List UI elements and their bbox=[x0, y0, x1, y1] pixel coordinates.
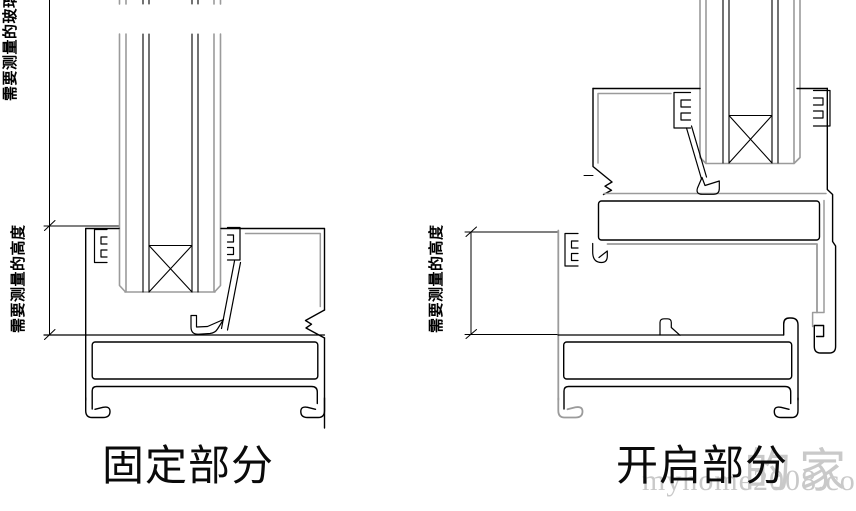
sash-chamber bbox=[599, 201, 820, 240]
fixed-glazing-bead-diagonal bbox=[222, 261, 241, 330]
opening-height-dimension-label: 需要测量的高度 bbox=[428, 224, 446, 333]
fixed-glass-dimension-label: 需要测量的玻璃 bbox=[2, 0, 20, 101]
fixed-frame-inner-gray-edge bbox=[246, 234, 321, 307]
fixed-glass-outer-panes bbox=[120, 0, 221, 292]
sash-right-inner-gray bbox=[813, 201, 824, 327]
fixed-height-dimension-label: 需要测量的高度 bbox=[10, 224, 28, 333]
opening-glass-inner-panes bbox=[723, 0, 778, 163]
sash-glazing-clip-right bbox=[814, 91, 831, 127]
fixed-frame-right-notch bbox=[306, 310, 325, 338]
drawing-canvas: 需要测量的玻璃 需要测量的高度 需要测量的高度 的家 myhome2008.co… bbox=[0, 0, 856, 511]
opening-dim-tick-top bbox=[466, 227, 477, 237]
fixed-dimension-lines bbox=[44, 0, 119, 340]
sash-left-wall-with-notch bbox=[593, 89, 612, 195]
fixed-frame-left-foot bbox=[86, 398, 110, 418]
sash-glazing-bead-diagonal bbox=[687, 126, 707, 179]
fixed-dim-tick-top bbox=[45, 221, 56, 231]
frame-glazing-clip bbox=[565, 234, 578, 267]
opening-sash-profile bbox=[584, 89, 836, 354]
opening-glass-outer-panes bbox=[700, 0, 800, 164]
frame-right-hook-and-wall bbox=[784, 318, 798, 400]
sash-glazing-bead-foot bbox=[697, 178, 719, 195]
fixed-section-drawing bbox=[44, 0, 325, 428]
fixed-dim-tick-bottom bbox=[45, 330, 56, 340]
frame-top-hook bbox=[593, 244, 608, 263]
fixed-frame-profile bbox=[44, 228, 325, 429]
frame-upper-web-gray bbox=[608, 244, 818, 313]
opening-dim-tick-bottom bbox=[466, 330, 477, 339]
opening-frame-profile bbox=[558, 231, 817, 418]
frame-chamber bbox=[564, 342, 792, 379]
fixed-glass-unit bbox=[120, 0, 221, 292]
sash-right-wall-and-hook bbox=[814, 89, 835, 354]
fixed-glass-spacer-x bbox=[149, 246, 192, 293]
fixed-caption: 固定部分 bbox=[102, 443, 274, 491]
opening-glass-unit bbox=[700, 0, 800, 164]
frame-lower-web bbox=[564, 387, 791, 410]
opening-dimension-lines bbox=[465, 227, 559, 339]
fixed-glazing-clip-right bbox=[228, 228, 241, 261]
fixed-glazing-clip-left bbox=[95, 230, 108, 263]
frame-left-foot-gray bbox=[558, 398, 582, 418]
fixed-glazing-bead-foot bbox=[191, 316, 224, 335]
opening-glass-spacer-x bbox=[729, 116, 772, 164]
opening-caption: 开启部分 bbox=[616, 443, 788, 491]
opening-section-drawing bbox=[465, 0, 836, 418]
frame-shelf-clip bbox=[660, 319, 680, 336]
frame-right-foot bbox=[774, 398, 798, 418]
fixed-frame-top-right-wall bbox=[221, 229, 325, 311]
sash-inner-gray-top-left bbox=[598, 94, 671, 164]
fixed-frame-lower-web bbox=[92, 387, 317, 410]
fixed-glass-inner-panes bbox=[143, 0, 198, 292]
sash-glazing-clip-left bbox=[674, 93, 691, 129]
fixed-frame-right-foot bbox=[301, 398, 325, 418]
fixed-frame-left-wall bbox=[86, 229, 119, 401]
fixed-frame-chamber bbox=[92, 342, 318, 379]
